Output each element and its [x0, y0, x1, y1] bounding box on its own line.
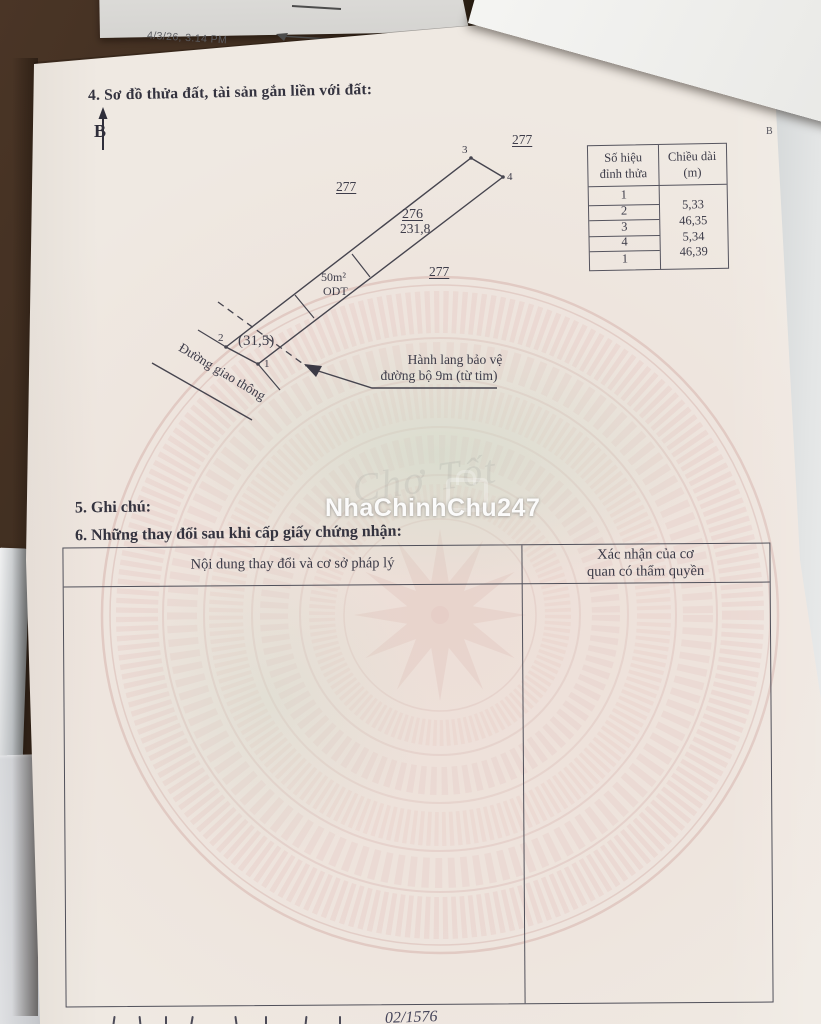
changes-table: Nội dung thay đổi và cơ sở pháp lý Xác n… — [62, 543, 773, 1008]
col2-header-line1: Chiều dài — [658, 149, 726, 165]
adjacent-parcel-277-mid: 277 — [429, 264, 449, 280]
nhachinhchu-watermark: NhaChinhChu247 — [325, 494, 540, 523]
changes-col1-header: Nội dung thay đổi và cơ sở pháp lý — [63, 554, 521, 574]
edge-length-table: Số hiệu đỉnh thửa Chiều dài (m) 1 2 3 4 … — [587, 143, 729, 271]
certificate-page: 4. Sơ đồ thửa đất, tài sản gắn liền với … — [0, 0, 821, 1024]
edge-length: 46,35 — [659, 213, 727, 229]
vertex-2: 2 — [218, 332, 224, 344]
vertex-4: 4 — [507, 171, 513, 183]
col2-header-line2: (m) — [658, 165, 726, 181]
vertex-1: 1 — [264, 358, 270, 370]
corridor-area: (31,5) — [238, 333, 274, 350]
col1-header-line2: đỉnh thửa — [588, 166, 658, 182]
vertex-3: 3 — [462, 144, 468, 156]
edge-length: 5,33 — [659, 197, 727, 213]
north-letter: B — [94, 121, 106, 142]
edge-length: 5,34 — [659, 229, 727, 245]
vertex-row: 3 — [589, 219, 659, 235]
corridor-note-line2: đường bộ 9m (từ tim) — [368, 368, 510, 384]
vertex-row: 1 — [590, 251, 660, 267]
section5-heading: 5. Ghi chú: — [75, 498, 151, 517]
adjacent-parcel-277-left: 277 — [336, 179, 356, 195]
odt-type: ODT — [323, 284, 348, 299]
adjacent-parcel-277-top: 277 — [512, 132, 532, 148]
footer-serial-fragment: 02/1576 — [385, 1008, 438, 1024]
vertex-row: 1 — [589, 187, 659, 203]
header-line — [64, 582, 770, 588]
edge-length: 46,39 — [660, 244, 728, 260]
vertex-row: 4 — [589, 234, 659, 250]
col1-header-line1: Số hiệu — [588, 150, 658, 166]
vertex-row: 2 — [589, 203, 659, 219]
page-corner-letter: B — [766, 126, 773, 137]
photo-of-land-certificate: 4/3/26, 3:14 PM — [0, 0, 821, 1024]
footer-cut-text: 02/1576 — [95, 1006, 695, 1024]
corridor-note-line1: Hành lang bảo vệ — [395, 352, 515, 368]
changes-col2-header-line1: Xác nhận của cơ — [521, 546, 769, 565]
parcel-area: 231,8 — [400, 221, 430, 237]
table-divider — [521, 545, 525, 1003]
odt-area: 50m² — [321, 270, 346, 285]
changes-col2-header-line2: quan có thẩm quyền — [522, 563, 770, 582]
